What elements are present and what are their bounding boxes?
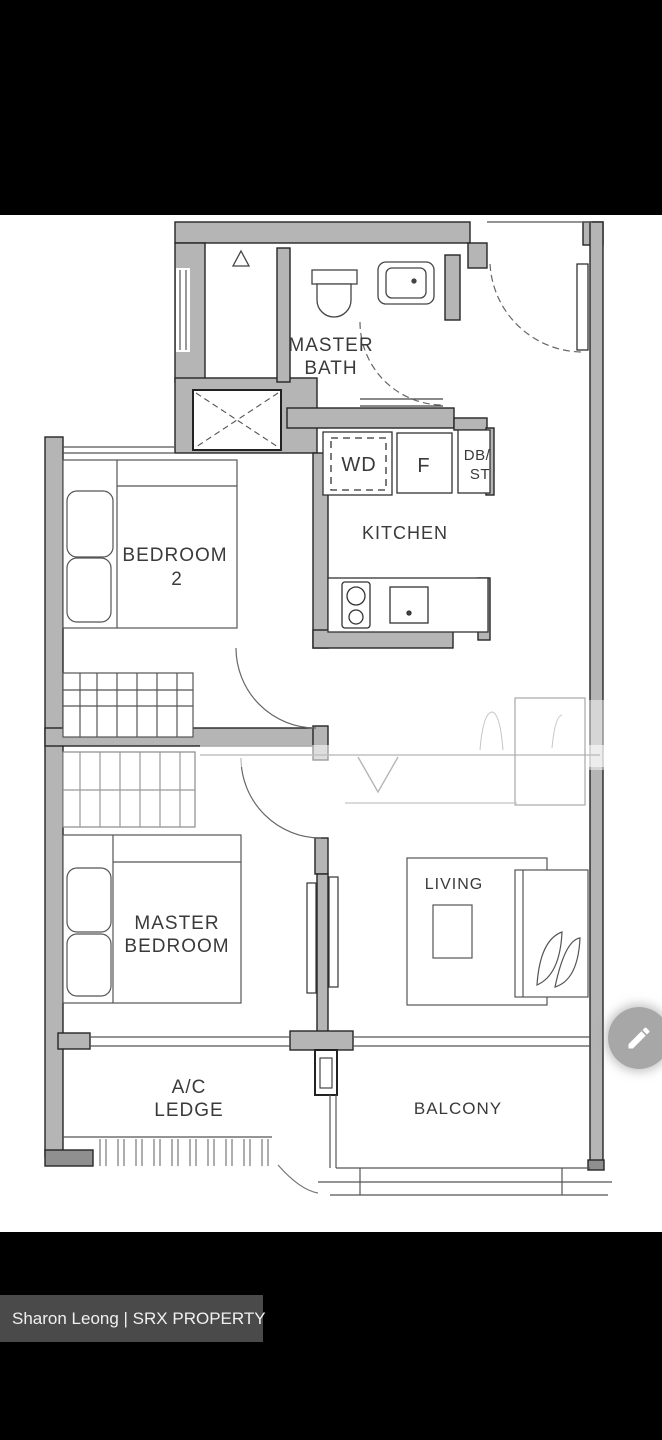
wall-shower-divider bbox=[277, 248, 290, 382]
ledge-louvres bbox=[100, 1139, 268, 1166]
kitchen-sink-drain bbox=[407, 611, 411, 615]
wall-partition-living bbox=[317, 874, 328, 1037]
label-master-bath-1: MASTER bbox=[288, 335, 373, 356]
bath-sink-drain bbox=[412, 279, 416, 283]
master-bed-pillow-1 bbox=[67, 868, 111, 932]
sliding-panel-left bbox=[307, 883, 316, 993]
wall-kitchen-south bbox=[313, 630, 453, 648]
floorplan-drawing: MASTER BATH WD F DB/ ST KITCHEN BEDROOM … bbox=[0, 215, 662, 1232]
entry-door-arc bbox=[490, 264, 583, 352]
shower-head-icon bbox=[233, 251, 249, 266]
bed2-pillow-1 bbox=[67, 491, 113, 557]
bedroom2-wardrobe bbox=[63, 673, 193, 737]
label-master-bath-2: BATH bbox=[304, 358, 357, 379]
bedroom2-door-arc bbox=[236, 648, 316, 728]
wall-south-tee bbox=[290, 1031, 353, 1050]
master-door-arc bbox=[241, 758, 321, 838]
bedroom2-furniture bbox=[63, 460, 237, 737]
window-gap-bath bbox=[176, 268, 190, 352]
wall-top bbox=[175, 222, 470, 243]
service-shaft bbox=[193, 390, 281, 450]
bed2-pillow-2 bbox=[67, 558, 111, 622]
master-bedroom-furniture bbox=[63, 752, 338, 1003]
label-balcony: BALCONY bbox=[414, 1099, 502, 1118]
entry-door-leaf bbox=[577, 264, 588, 350]
sofa bbox=[515, 870, 588, 997]
ledge-balcony-lines bbox=[63, 1050, 612, 1195]
caption-text: Sharon Leong | SRX PROPERTY bbox=[0, 1295, 263, 1342]
label-washer-dryer: WD bbox=[341, 454, 376, 476]
toilet-bowl bbox=[317, 284, 351, 317]
sliding-panel-right bbox=[329, 877, 338, 987]
wall-right-bottom-cap bbox=[588, 1160, 604, 1170]
wall-right bbox=[590, 222, 603, 1168]
wall-kitchen-top-ext bbox=[454, 418, 487, 430]
wall-bottom-left-cap bbox=[45, 1150, 93, 1166]
label-ac-ledge-2: LEDGE bbox=[154, 1100, 223, 1121]
label-master-bedroom-1: MASTER bbox=[134, 913, 219, 934]
wall-mb-south-block bbox=[58, 1033, 90, 1049]
wall-bath-east bbox=[445, 255, 460, 320]
label-ac-ledge-1: A/C bbox=[172, 1077, 207, 1098]
master-bed-pillow-2 bbox=[67, 934, 111, 996]
label-living: LIVING bbox=[425, 876, 483, 893]
wall-kitchen-top bbox=[287, 408, 454, 428]
kitchen-sink bbox=[390, 587, 428, 623]
caption-bar: Sharon Leong | SRX PROPERTY bbox=[0, 1295, 263, 1342]
label-master-bedroom-2: BEDROOM bbox=[124, 936, 229, 957]
label-fridge: F bbox=[417, 455, 430, 477]
label-kitchen: KITCHEN bbox=[362, 523, 448, 543]
wall-entry-jamb bbox=[468, 243, 487, 268]
edit-fab-button[interactable] bbox=[608, 1007, 662, 1069]
label-bedroom2-2: 2 bbox=[171, 569, 183, 590]
coffee-table bbox=[433, 905, 472, 958]
label-bedroom2-1: BEDROOM bbox=[122, 545, 227, 566]
ledge-curve bbox=[278, 1165, 318, 1193]
label-db-st-2: ST bbox=[470, 466, 490, 483]
bath-sink-basin bbox=[386, 268, 426, 298]
floorplan-image: MASTER BATH WD F DB/ ST KITCHEN BEDROOM … bbox=[0, 215, 662, 1232]
toilet-tank bbox=[312, 270, 357, 284]
label-db-st-1: DB/ bbox=[464, 447, 491, 464]
pencil-icon bbox=[625, 1024, 653, 1052]
wall-stub-master-door bbox=[315, 838, 328, 874]
photo-viewer-screen: MASTER BATH WD F DB/ ST KITCHEN BEDROOM … bbox=[0, 0, 662, 1440]
